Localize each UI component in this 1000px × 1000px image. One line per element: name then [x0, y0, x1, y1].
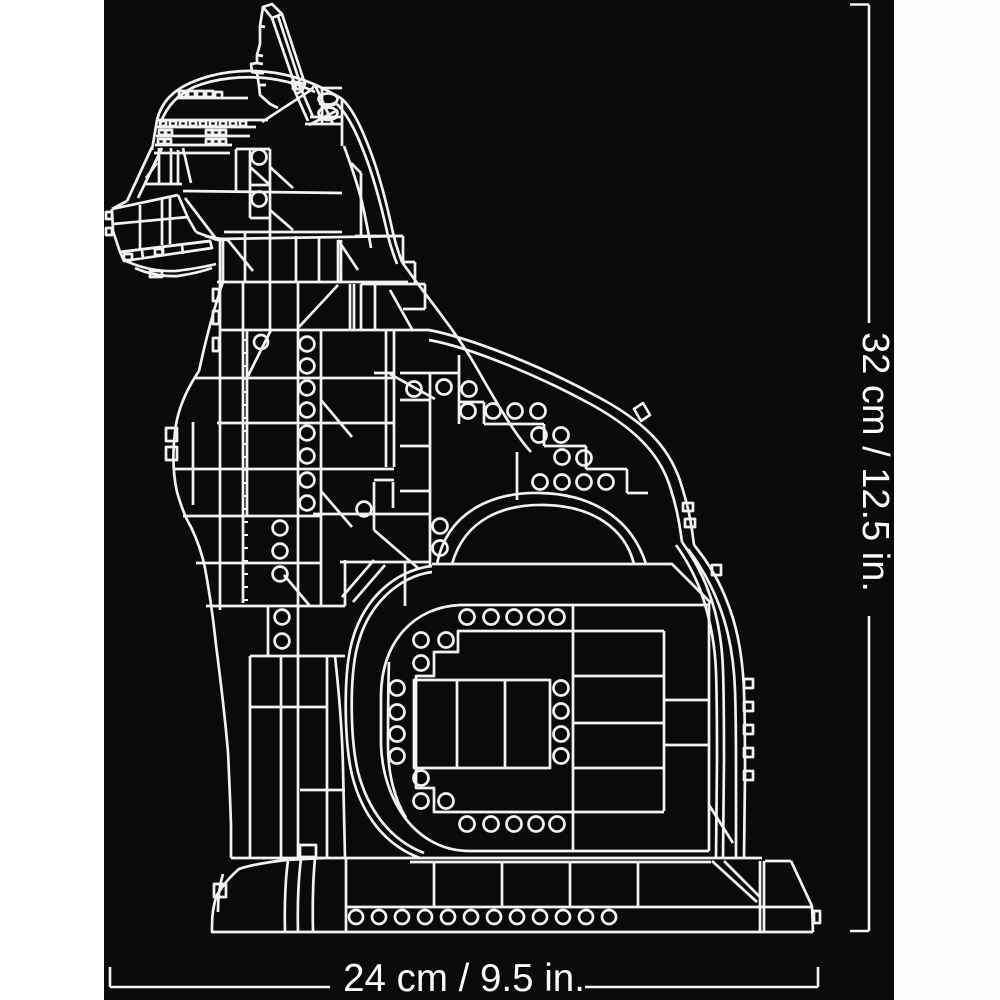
svg-text:32 cm / 12.5 in.: 32 cm / 12.5 in. — [854, 332, 896, 592]
svg-text:24 cm / 9.5 in.: 24 cm / 9.5 in. — [343, 957, 585, 1000]
